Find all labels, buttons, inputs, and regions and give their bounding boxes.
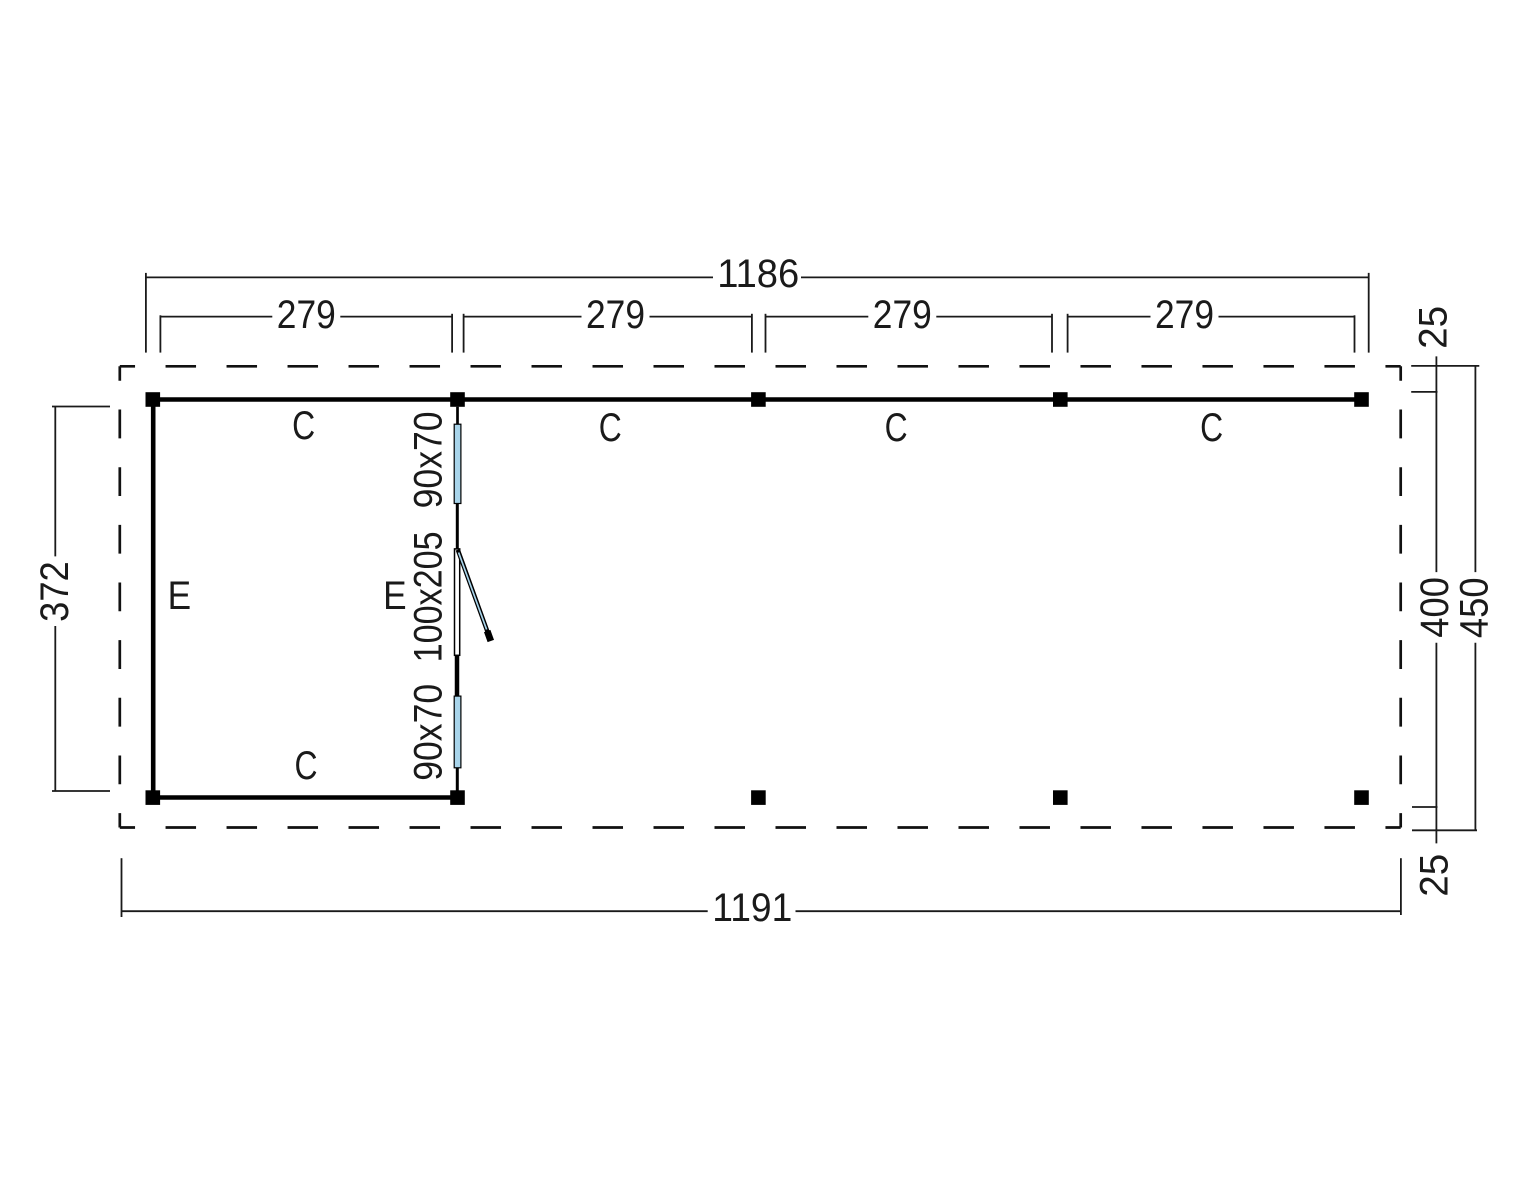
svg-text:90x70: 90x70 <box>406 684 450 781</box>
svg-text:C: C <box>885 406 908 450</box>
svg-text:25: 25 <box>1413 854 1457 897</box>
svg-text:25: 25 <box>1412 306 1456 349</box>
svg-text:C: C <box>599 406 622 450</box>
svg-text:279: 279 <box>277 293 336 337</box>
svg-text:E: E <box>383 574 407 618</box>
svg-text:450: 450 <box>1453 577 1497 638</box>
svg-text:400: 400 <box>1413 577 1457 638</box>
svg-text:372: 372 <box>33 561 77 622</box>
svg-text:1186: 1186 <box>717 252 799 296</box>
svg-text:1191: 1191 <box>712 886 792 930</box>
svg-text:279: 279 <box>1155 293 1214 337</box>
svg-text:E: E <box>168 574 192 618</box>
svg-text:C: C <box>295 744 318 788</box>
svg-text:279: 279 <box>873 293 932 337</box>
svg-text:C: C <box>292 404 315 448</box>
svg-text:279: 279 <box>586 293 645 337</box>
svg-text:90x70: 90x70 <box>406 411 450 508</box>
svg-text:100x205: 100x205 <box>406 531 450 662</box>
svg-text:C: C <box>1200 406 1223 450</box>
